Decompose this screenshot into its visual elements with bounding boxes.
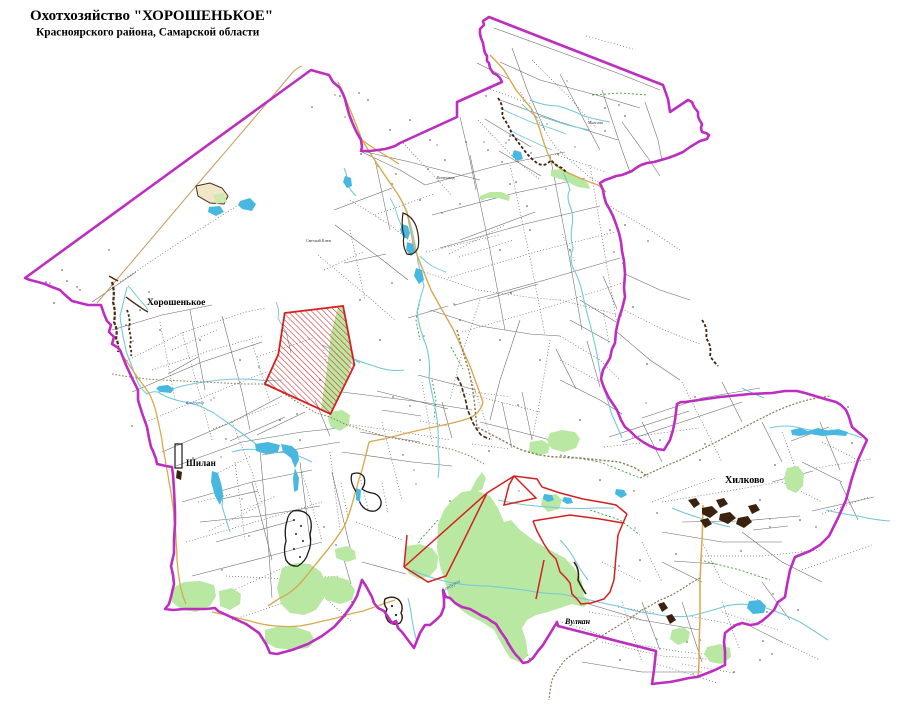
svg-text:Хорошенькое: Хорошенькое xyxy=(147,298,205,308)
svg-text:Молгачи: Молгачи xyxy=(588,120,604,125)
svg-text:Светлый Ключ: Светлый Ключ xyxy=(306,238,331,243)
svg-text:Вулкан: Вулкан xyxy=(564,617,591,626)
svg-text:Охотхозяйство "ХОРОШЕНЬКОЕ": Охотхозяйство "ХОРОШЕНЬКОЕ" xyxy=(30,8,273,24)
svg-text:Конезавод: Конезавод xyxy=(437,175,455,180)
svg-text:Хилково: Хилково xyxy=(725,475,764,486)
svg-text:Шилан: Шилан xyxy=(186,458,216,468)
svg-text:Кондурча: Кондурча xyxy=(185,400,205,405)
svg-text:Красноярского района, Самарско: Красноярского района, Самарской области xyxy=(36,27,260,39)
